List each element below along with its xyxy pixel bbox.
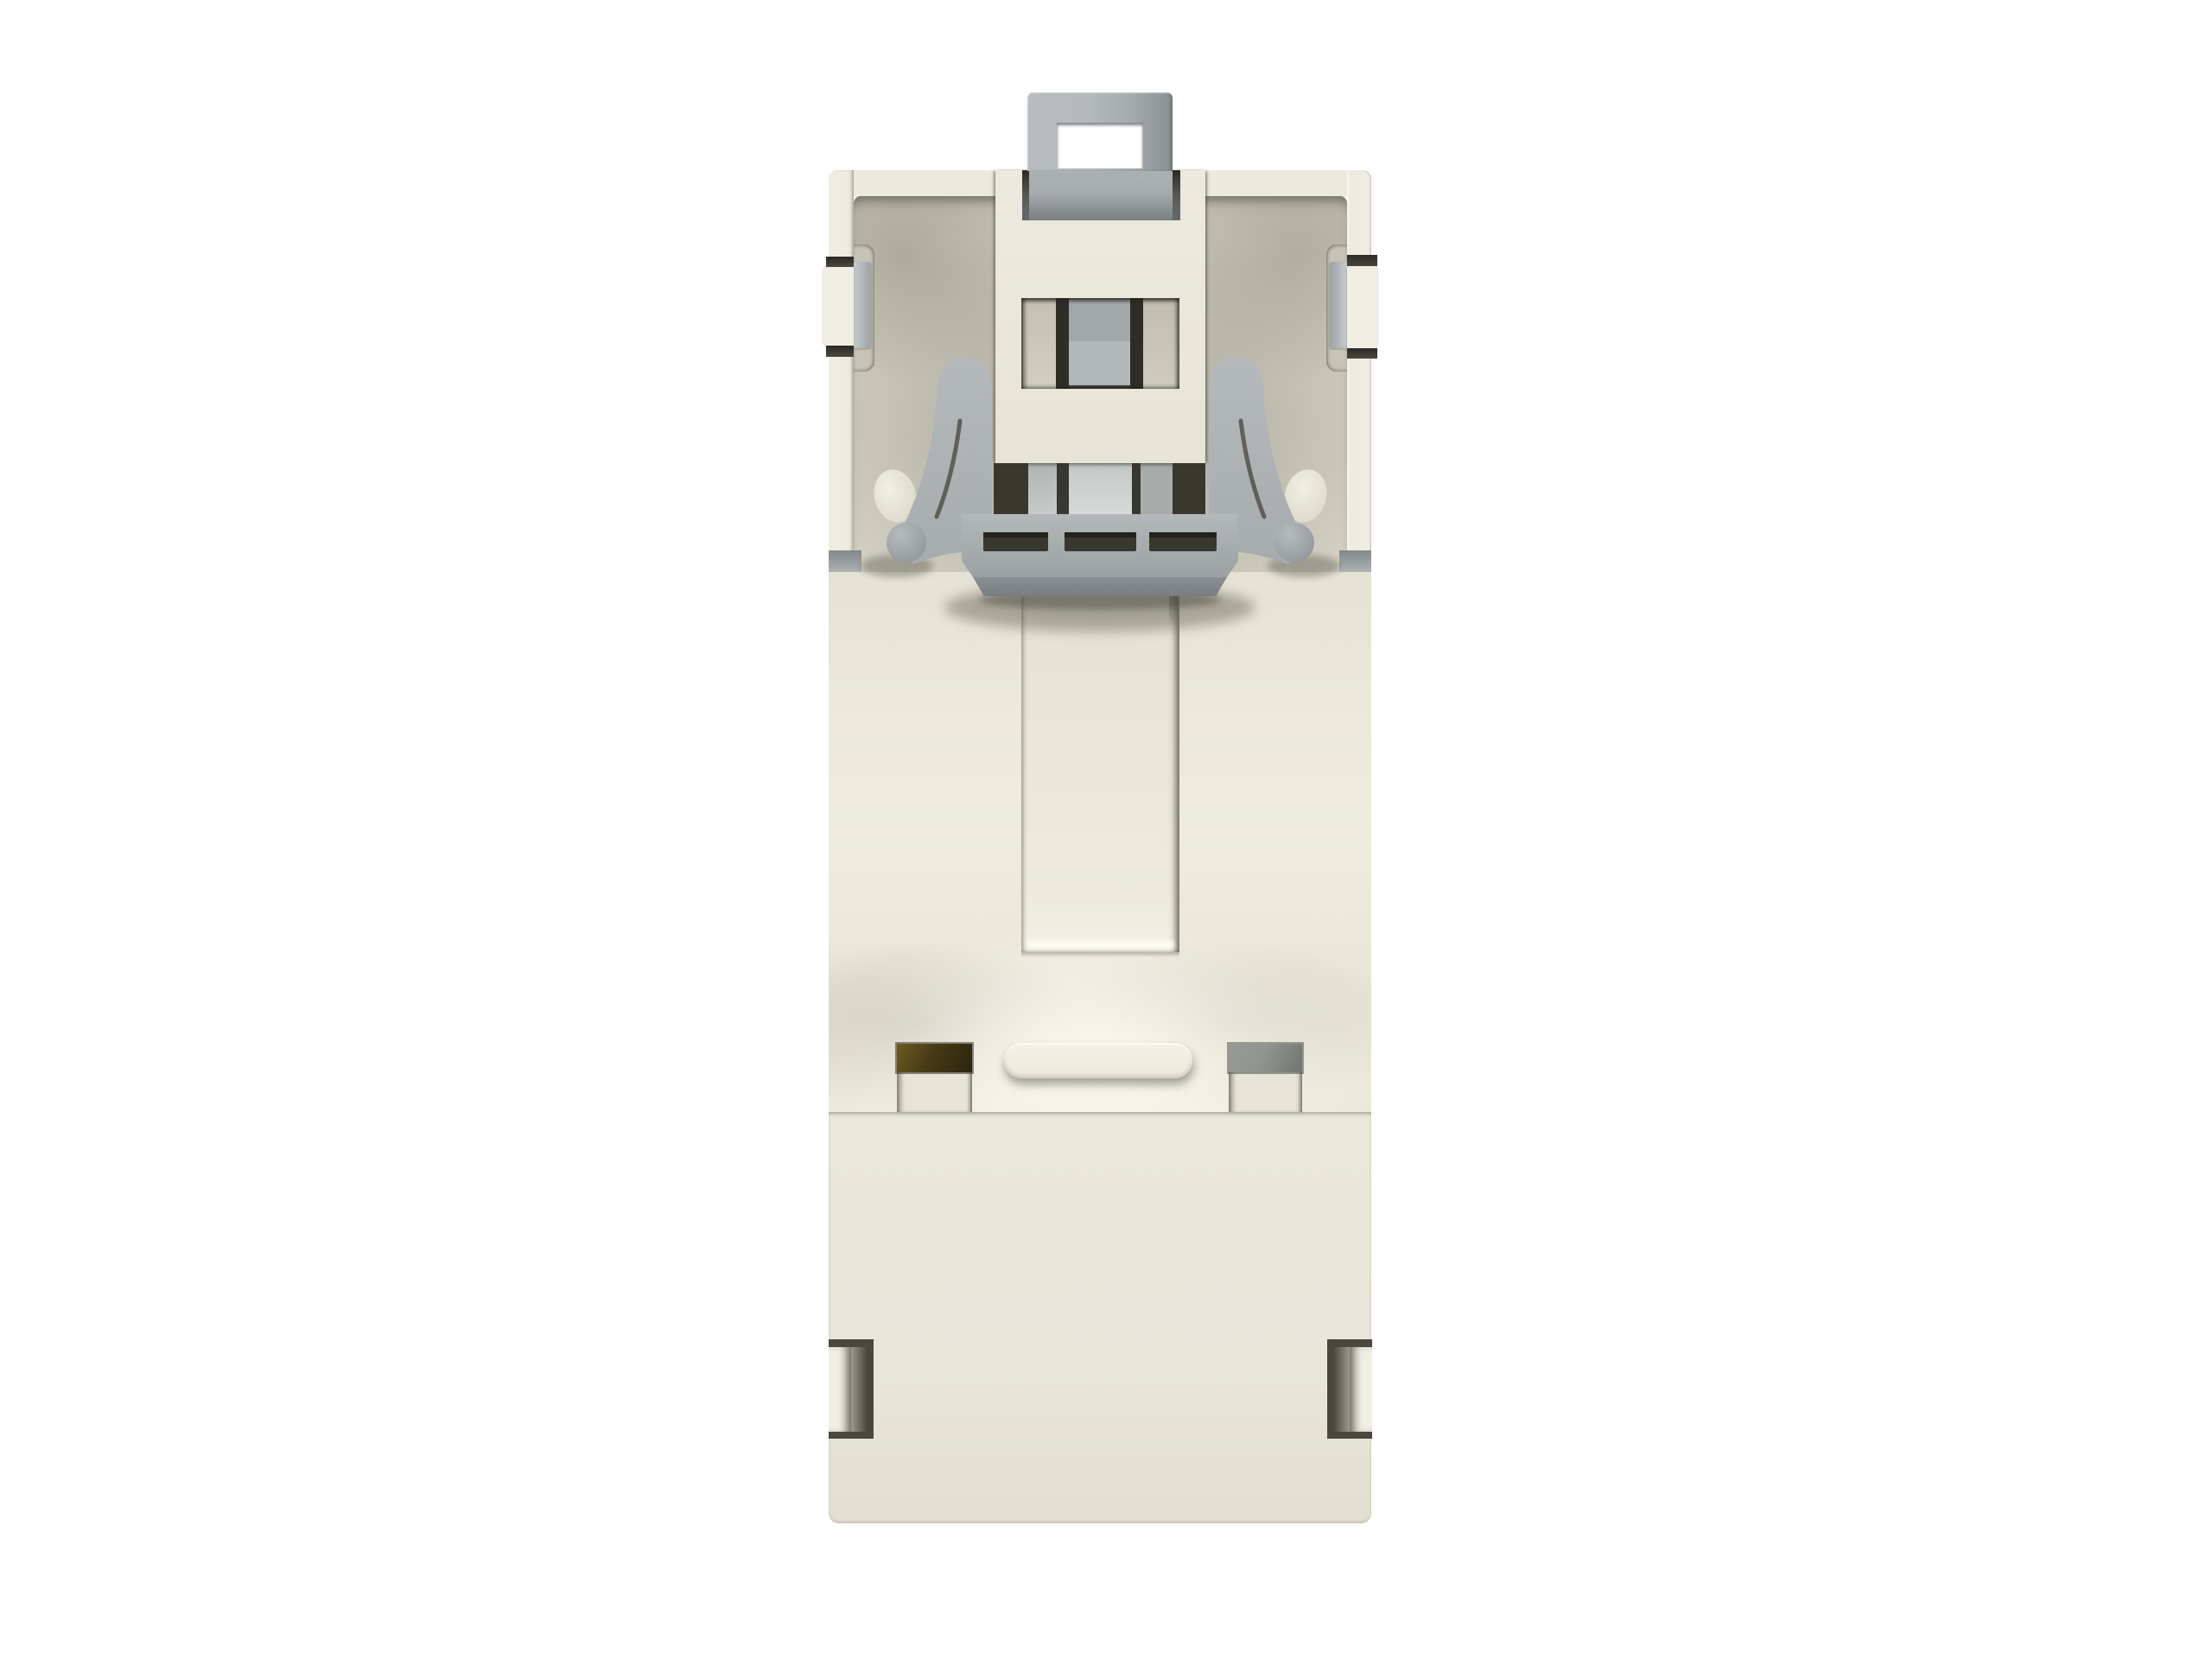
render-canvas (0, 0, 2212, 1659)
latch-slots (983, 532, 1217, 551)
spring-ball-left (887, 523, 926, 563)
spring-ball-right (1274, 523, 1314, 563)
release-latch (0, 0, 2212, 1659)
latch-chamfer (973, 577, 1227, 596)
